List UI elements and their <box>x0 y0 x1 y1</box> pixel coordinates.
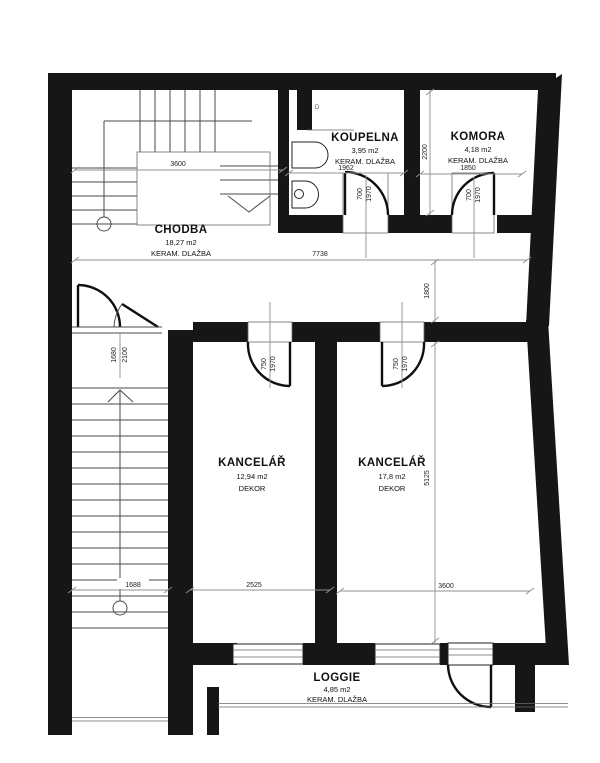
room-label-koupelna: KOUPELNA <box>331 132 399 144</box>
dim-komora-door-h: 1970 <box>475 187 482 203</box>
dim-entry-door-height: 2100 <box>122 347 129 363</box>
window-office-left <box>233 644 303 664</box>
balcony-door-frame <box>448 643 493 665</box>
room-label-kancelar-left: KANCELÁŘ <box>218 456 286 469</box>
room-floor-chodba: KERAM. DLAŽBA <box>151 249 211 258</box>
room-area-chodba: 18,27 m2 <box>165 238 196 247</box>
dim-office-left-door-w: 750 <box>261 358 268 370</box>
dim-hall-right-depth: 1800 <box>424 283 431 299</box>
dim-bath-door-w: 700 <box>357 188 364 200</box>
room-label-loggie: LOGGIE <box>313 672 360 684</box>
door-komora <box>452 173 494 233</box>
stairs-lower-circle <box>113 601 127 615</box>
floor-plan-canvas: CHODBA 18,27 m2 KERAM. DLAŽBA KOUPELNA 3… <box>0 0 600 763</box>
room-label-komora: KOMORA <box>451 131 506 143</box>
toilet-drain <box>295 190 304 199</box>
dim-hall-width: 7738 <box>312 251 328 258</box>
marker-d-label: D <box>315 105 320 111</box>
dim-stairs-width: 1688 <box>125 582 141 589</box>
stairs-landing-outline <box>137 152 270 225</box>
door-loggia <box>448 665 491 707</box>
room-label-kancelar-right: KANCELÁŘ <box>358 456 426 469</box>
stairs-upper-treads <box>72 90 278 224</box>
dim-koupelna-width: 1962 <box>338 165 354 172</box>
stairs-upper-direction-arrow <box>228 196 270 212</box>
room-area-kancelar-left: 12,94 m2 <box>236 472 267 481</box>
floor-plan-page: CHODBA 18,27 m2 KERAM. DLAŽBA KOUPELNA 3… <box>0 0 600 763</box>
dim-office-left-width: 2525 <box>246 582 262 589</box>
dim-entry-door-width: 1680 <box>111 347 118 363</box>
door-entry-double <box>72 285 162 333</box>
washbasin <box>292 142 328 168</box>
dim-office-left-door-h: 1970 <box>270 356 277 372</box>
dim-stair-top-width: 3600 <box>170 161 186 168</box>
window-office-right <box>375 644 440 664</box>
dimension-ticks <box>68 89 534 644</box>
dim-komora-door-w: 700 <box>466 189 473 201</box>
stairwell-bottom-railing <box>72 718 168 722</box>
dim-offices-depth: 5125 <box>424 470 431 486</box>
room-floor-kancelar-left: DEKOR <box>239 484 266 493</box>
room-floor-kancelar-right: DEKOR <box>379 484 406 493</box>
outer-wall-right-upper <box>526 74 562 326</box>
interior-walls <box>168 90 550 735</box>
dim-komora-depth: 2200 <box>422 144 429 160</box>
dim-office-right-door-h: 1970 <box>402 356 409 372</box>
room-floor-loggie: KERAM. DLAŽBA <box>307 695 367 704</box>
room-area-koupelna: 3,95 m2 <box>351 146 378 155</box>
room-floor-komora: KERAM. DLAŽBA <box>448 156 508 165</box>
dim-komora-width: 1850 <box>460 165 476 172</box>
dim-office-right-door-w: 750 <box>393 358 400 370</box>
room-label-chodba: CHODBA <box>155 224 208 236</box>
dim-office-right-width: 3600 <box>438 583 454 590</box>
room-area-kancelar-right: 17,8 m2 <box>378 472 405 481</box>
room-area-komora: 4,18 m2 <box>464 145 491 154</box>
room-area-loggie: 4,85 m2 <box>323 685 350 694</box>
outer-wall-right-lower <box>526 320 569 665</box>
dim-bath-door-h: 1970 <box>366 186 373 202</box>
